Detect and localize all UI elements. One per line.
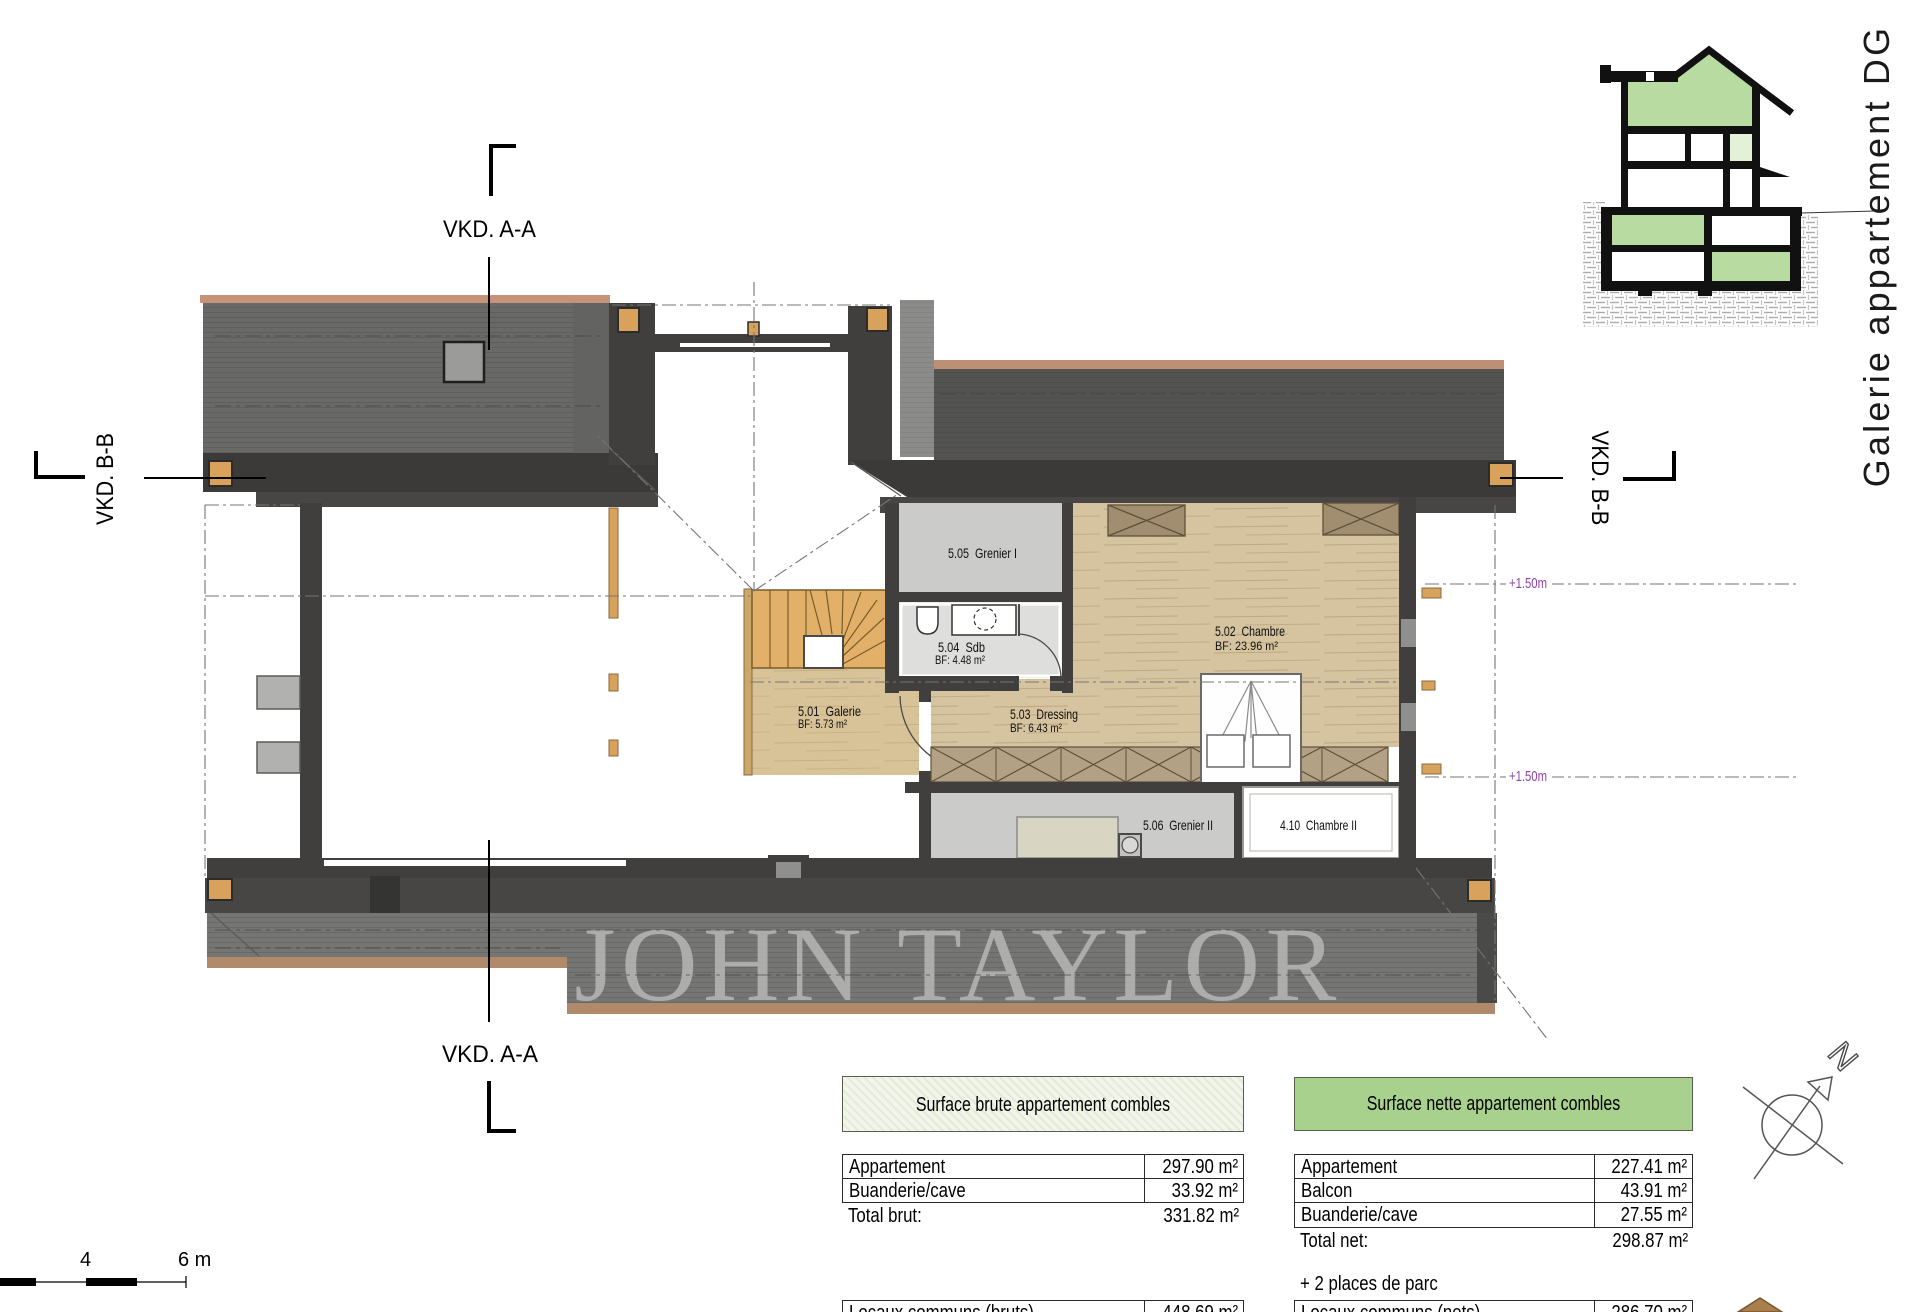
svg-text:4.10 Chambre II: 4.10 Chambre II xyxy=(1280,817,1357,833)
svg-text:BF: 5.73 m²: BF: 5.73 m² xyxy=(798,717,847,731)
svg-text:5.02 Chambre: 5.02 Chambre xyxy=(1215,623,1285,639)
svg-text:Galerie appartement DG: Galerie appartement DG xyxy=(1856,25,1897,488)
svg-text:6 m: 6 m xyxy=(178,1249,211,1271)
svg-text:BF: 6.43 m²: BF: 6.43 m² xyxy=(1010,721,1062,735)
svg-text:+1.50m: +1.50m xyxy=(1509,768,1547,785)
svg-text:BF: 23.96 m²: BF: 23.96 m² xyxy=(1215,639,1278,653)
svg-text:VKD. B-B: VKD. B-B xyxy=(92,433,119,525)
svg-text:N: N xyxy=(1820,1035,1865,1078)
svg-text:5.05 Grenier I: 5.05 Grenier I xyxy=(948,545,1017,561)
svg-text:VKD. A-A: VKD. A-A xyxy=(442,1041,538,1068)
svg-text:+1.50m: +1.50m xyxy=(1509,575,1547,592)
svg-text:5.03 Dressing: 5.03 Dressing xyxy=(1010,706,1078,722)
svg-text:4: 4 xyxy=(80,1249,91,1271)
svg-text:5.06 Grenier II: 5.06 Grenier II xyxy=(1143,817,1213,833)
svg-text:VKD. B-B: VKD. B-B xyxy=(1586,431,1613,526)
svg-text:BF: 4.48 m²: BF: 4.48 m² xyxy=(935,653,985,667)
svg-text:VKD. A-A: VKD. A-A xyxy=(443,216,536,243)
svg-text:JOHN TAYLOR: JOHN TAYLOR xyxy=(574,906,1342,1023)
